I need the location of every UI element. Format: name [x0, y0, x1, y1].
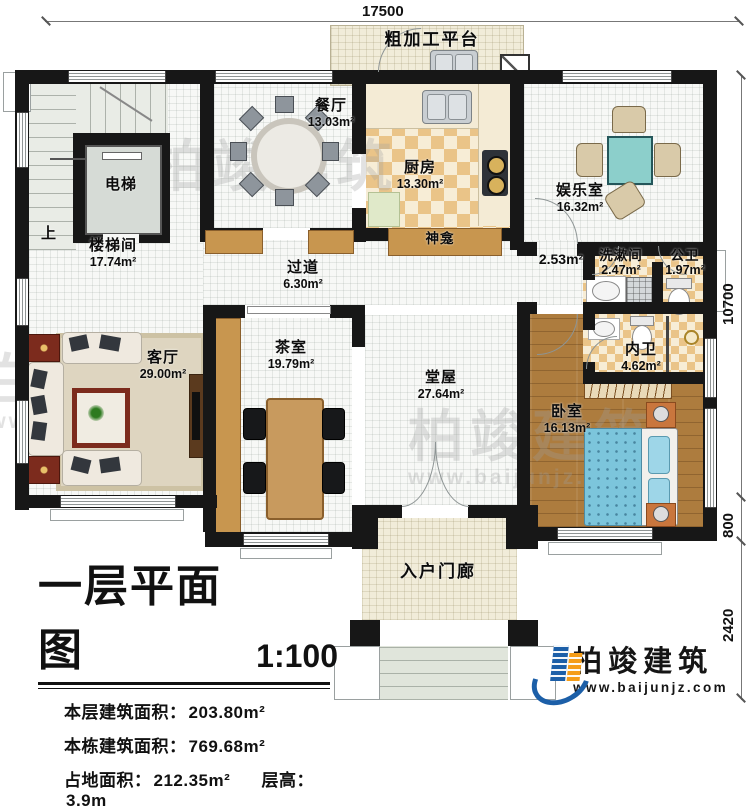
logo-icon [528, 641, 567, 701]
dimension-right-middle: 800 [720, 498, 737, 538]
room-name: 娱乐室 [556, 183, 604, 200]
dining-chair [275, 96, 294, 113]
window-left-middle [17, 278, 28, 326]
wall-hall-bedroom [517, 302, 530, 518]
wall-ensuite-bottom [583, 372, 703, 384]
room-label-porch: 入户门廊 [400, 562, 476, 581]
tea-chair [243, 462, 266, 494]
room-label-hallway: 过道 6.30m² [283, 260, 323, 291]
ensuite-sink-bowl [593, 321, 615, 337]
room-name: 楼梯间 [89, 238, 137, 255]
stat-building-area: 本栋建筑面积：769.68m² [64, 732, 338, 757]
wall-ensuite-left-a [583, 314, 595, 330]
dimension-line-right [741, 75, 742, 700]
room-label-tea-room: 茶室 19.79m² [268, 340, 315, 371]
kitchen-sink-basin [448, 94, 467, 120]
room-area: 16.13m² [544, 421, 591, 435]
nightstand-lamp [653, 506, 669, 522]
room-area: 1.97m² [665, 263, 705, 277]
logo-text: 柏竣建筑 www.baijunjz.com [573, 648, 728, 695]
floor-plan-page: { "plan": { "rooms": { "stairwell": {"na… [0, 0, 750, 711]
porch-column-left [334, 646, 380, 700]
room-name: 客厅 [140, 350, 187, 367]
wall-ent-bottom-a [517, 242, 537, 256]
side-table [28, 456, 60, 484]
room-area: 19.79m² [268, 357, 315, 371]
bed-blanket [584, 428, 642, 526]
title-block: 一层平面图 1:100 本层建筑面积：203.80m² 本栋建筑面积：769.6… [38, 550, 338, 811]
window-left-lower [17, 400, 28, 464]
wall-wash-wc-divider [652, 262, 663, 306]
exterior-sill-living [50, 509, 184, 521]
room-name: 堂屋 [418, 370, 465, 387]
stat-label: 占地面积： [64, 771, 152, 790]
wall-stair-dining [200, 70, 214, 242]
window-entertainment [562, 71, 672, 82]
tea-chair [322, 408, 345, 440]
room-name: 电梯 [105, 177, 137, 194]
window-tea-bottom [243, 534, 329, 545]
room-label-living: 客厅 29.00m² [140, 350, 187, 381]
wall-dining-kitchen-b [352, 208, 366, 242]
room-name: 上 [41, 226, 57, 243]
room-label-washroom: 洗漱间 2.47m² [599, 248, 643, 277]
porch-pier-top-left [352, 505, 378, 549]
stat-label: 本栋建筑面积： [64, 737, 187, 756]
dining-chair [275, 189, 294, 206]
room-label-main-hall: 堂屋 27.64m² [418, 370, 465, 401]
room-area: 27.64m² [418, 387, 465, 401]
room-area: 13.30m² [397, 177, 444, 191]
room-area: 6.30m² [283, 277, 323, 291]
room-name: 餐厅 [308, 98, 355, 115]
shower-divider [666, 316, 669, 372]
wall-tea-left [203, 305, 216, 532]
room-area: 13.03m² [308, 115, 355, 129]
dining-chair [322, 142, 339, 161]
game-chair [576, 143, 603, 177]
logo-website: www.baijunjz.com [573, 680, 728, 695]
logo-company-name: 柏竣建筑 [573, 648, 728, 677]
room-name: 厨房 [397, 160, 444, 177]
dimension-right-lower: 2420 [720, 586, 737, 642]
room-name: 公卫 [665, 248, 705, 263]
room-name: 内卫 [621, 342, 661, 359]
sofa-cushion [31, 421, 47, 441]
dimension-right-upper: 10700 [720, 255, 737, 325]
porch-steps [380, 646, 508, 700]
room-name: 茶室 [268, 340, 315, 357]
washroom-sink [592, 281, 620, 301]
hall-cabinet [205, 230, 263, 254]
window-dining [215, 71, 333, 82]
game-chair [612, 106, 646, 133]
tea-chair [322, 462, 345, 494]
nightstand-lamp [653, 406, 669, 422]
stat-footprint-height: 占地面积：212.35m² 层高：3.9m [64, 766, 338, 811]
title-underline-thin [38, 688, 330, 689]
stove-burner [487, 176, 506, 195]
stove-burner [487, 156, 506, 175]
room-area: 29.00m² [140, 367, 187, 381]
sofa-cushion [99, 457, 121, 474]
porch-pier-top-right [506, 505, 538, 549]
porch-pier-bottom-left [350, 620, 380, 646]
room-area: 2.53m² [539, 252, 583, 268]
room-label-public-wc: 公卫 1.97m² [665, 248, 705, 277]
room-label-shrine: 神龛 [426, 231, 455, 246]
kitchen-sink-basin [427, 94, 446, 120]
room-label-kitchen: 厨房 13.30m² [397, 160, 444, 191]
room-name: 粗加工平台 [385, 30, 480, 49]
stat-value: 212.35m² [154, 771, 231, 790]
room-name: 卧室 [544, 404, 591, 421]
room-label-dining: 餐厅 13.03m² [308, 98, 355, 129]
up-mark: 上 [41, 226, 57, 243]
window-bedroom-right [705, 408, 716, 508]
tea-table [266, 398, 324, 520]
window-stairwell [68, 71, 166, 82]
room-label-corridor: 2.53m² [539, 252, 583, 268]
exterior-sill-bedroom [548, 542, 662, 555]
stat-value: 769.68m² [189, 737, 266, 756]
room-name: 洗漱间 [599, 248, 643, 263]
dimension-top: 17500 [362, 3, 404, 20]
dining-chair [230, 142, 247, 161]
bed-pillow [648, 436, 670, 474]
room-area: 17.74m² [89, 255, 137, 269]
game-chair [654, 143, 681, 177]
elevator-door-slot [102, 152, 142, 160]
sofa-cushion [31, 395, 48, 415]
window-bedroom-bottom [557, 528, 653, 539]
window-ensuite [705, 338, 716, 398]
stat-value: 3.9m [66, 791, 107, 810]
company-logo: 柏竣建筑 www.baijunjz.com [528, 640, 728, 702]
room-label-ensuite: 内卫 4.62m² [621, 342, 661, 373]
hall-cabinet [308, 230, 354, 254]
tea-partition [213, 318, 241, 534]
plan-title: 一层平面图 [38, 550, 236, 678]
room-name: 入户门廊 [400, 562, 476, 581]
room-name: 神龛 [426, 231, 455, 246]
side-table [28, 334, 60, 362]
coffee-table-plant [88, 405, 104, 421]
room-name: 过道 [283, 260, 323, 277]
stat-value: 203.80m² [189, 703, 266, 722]
room-label-bedroom: 卧室 16.13m² [544, 404, 591, 435]
room-label-stairwell: 楼梯间 17.74m² [89, 238, 137, 269]
dimension-line-top [45, 21, 740, 22]
room-label-entertainment: 娱乐室 16.32m² [556, 183, 604, 214]
stat-label: 层高： [262, 766, 315, 791]
room-area: 16.32m² [556, 200, 604, 214]
kitchen-mat [368, 192, 400, 227]
wall-kitchen-ent [510, 70, 524, 250]
room-label-elevator: 电梯 [105, 177, 137, 194]
room-label-platform: 粗加工平台 [385, 30, 480, 49]
plan-scale: 1:100 [256, 638, 338, 678]
wall-tea-right [352, 305, 365, 347]
window-left-upper [17, 112, 28, 168]
tea-chair [243, 408, 266, 440]
tv-screen [192, 392, 200, 440]
room-area: 4.62m² [621, 359, 661, 373]
room-area: 2.47m² [599, 263, 643, 277]
title-underline [38, 682, 330, 685]
window-living-bottom [60, 496, 176, 507]
stat-label: 本层建筑面积： [64, 703, 187, 722]
stair-flight-top [75, 84, 168, 135]
wall-bath-mid [583, 302, 717, 314]
game-table [607, 136, 653, 185]
shower-head [684, 330, 699, 345]
sliding-door-tea [247, 306, 331, 314]
